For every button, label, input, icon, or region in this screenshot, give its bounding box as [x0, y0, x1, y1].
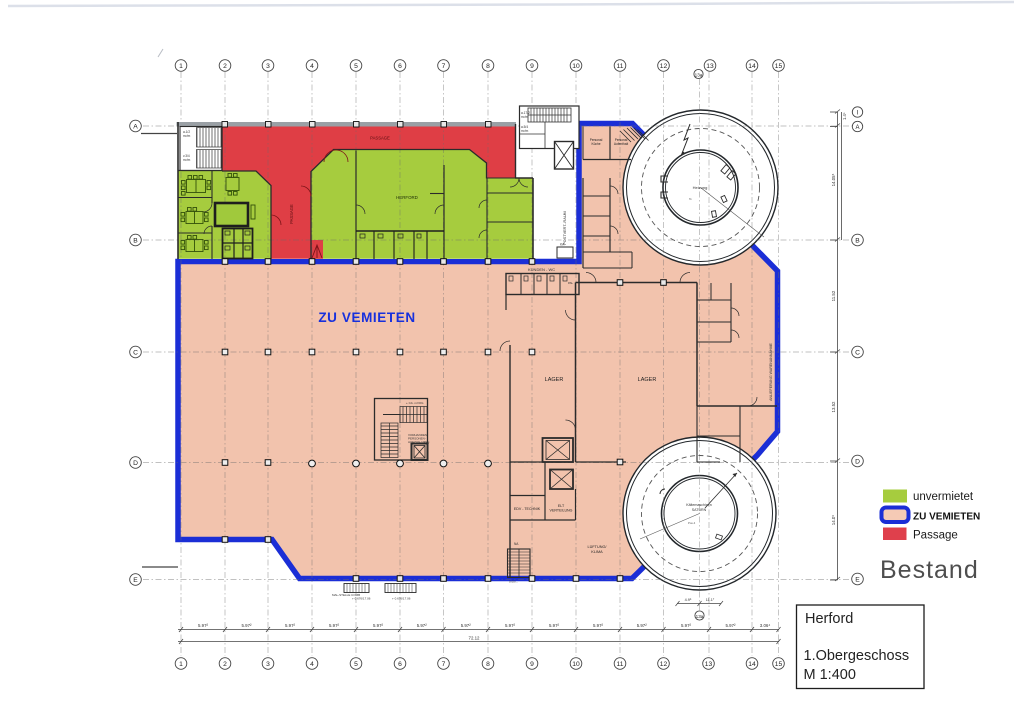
- svg-text:7: 7: [442, 63, 446, 70]
- svg-text:ZU VEMIETEN: ZU VEMIETEN: [913, 512, 980, 523]
- svg-text:72.12: 72.12: [469, 636, 481, 641]
- svg-text:14.0⁵: 14.0⁵: [831, 515, 836, 526]
- svg-text:m²/m: m²/m: [183, 134, 191, 138]
- svg-text:5.97²: 5.97²: [593, 623, 604, 628]
- svg-text:B: B: [855, 238, 860, 245]
- svg-text:5.97²: 5.97²: [549, 623, 560, 628]
- svg-text:E: E: [855, 577, 860, 584]
- svg-text:12: 12: [660, 661, 668, 668]
- svg-text:9: 9: [530, 63, 534, 70]
- svg-text:5.97²: 5.97²: [505, 623, 516, 628]
- svg-text:LÜFTUNG/: LÜFTUNG/: [588, 545, 608, 549]
- svg-text:8: 8: [486, 661, 490, 668]
- svg-text:14: 14: [748, 63, 756, 70]
- svg-text:M 1:400: M 1:400: [804, 667, 856, 683]
- svg-text:1.Obergeschoss: 1.Obergeschoss: [804, 648, 910, 664]
- svg-text:PASSAGE: PASSAGE: [370, 136, 390, 141]
- svg-text:14.05⁵: 14.05⁵: [831, 173, 836, 186]
- svg-text:Herford: Herford: [805, 611, 853, 627]
- svg-text:4.9⁵: 4.9⁵: [685, 598, 692, 602]
- svg-text:3: 3: [266, 63, 270, 70]
- svg-text:POSTVERT.-RAUM: POSTVERT.-RAUM: [563, 211, 567, 244]
- svg-text:11: 11: [617, 661, 624, 668]
- svg-text:KLIMA: KLIMA: [591, 550, 603, 554]
- svg-text:LAGER: LAGER: [638, 377, 657, 383]
- svg-text:E: E: [133, 577, 138, 584]
- svg-text:6: 6: [398, 661, 402, 668]
- svg-text:%: %: [689, 197, 692, 201]
- svg-text:11: 11: [617, 63, 624, 70]
- svg-text:PAL: PAL: [568, 281, 574, 285]
- svg-text:7: 7: [442, 661, 446, 668]
- svg-text:8: 8: [486, 63, 490, 70]
- svg-text:0.00/...: 0.00/...: [509, 580, 518, 584]
- svg-text:EDV - TECHNIK: EDV - TECHNIK: [514, 507, 541, 511]
- svg-text:4: 4: [310, 63, 314, 70]
- svg-text:1: 1: [179, 63, 183, 70]
- svg-text:1: 1: [179, 661, 183, 668]
- svg-text:VERTEILUNG: VERTEILUNG: [550, 509, 573, 513]
- svg-text:5.97²: 5.97²: [198, 623, 209, 628]
- svg-text:HERFORD: HERFORD: [396, 195, 418, 200]
- svg-text:ZU VEMIETEN: ZU VEMIETEN: [318, 310, 415, 325]
- svg-text:13a: 13a: [696, 614, 704, 619]
- svg-text:5.97²: 5.97²: [681, 623, 692, 628]
- svg-text:C: C: [133, 350, 138, 357]
- svg-text:3: 3: [266, 661, 270, 668]
- svg-text:+ 0.676/17.06: + 0.676/17.06: [352, 597, 371, 601]
- svg-text:Aufenthalt: Aufenthalt: [614, 142, 628, 146]
- svg-text:13: 13: [705, 661, 713, 668]
- svg-text:Bestand: Bestand: [880, 556, 979, 584]
- svg-text:m²/m: m²/m: [521, 115, 529, 119]
- svg-text:ELT: ELT: [558, 504, 565, 508]
- svg-text:13: 13: [706, 63, 714, 70]
- svg-text:14: 14: [748, 661, 756, 668]
- svg-text:5.97²: 5.97²: [329, 623, 340, 628]
- svg-text:B: B: [133, 238, 138, 245]
- svg-text:15: 15: [775, 661, 783, 668]
- svg-text:PASSAGE: PASSAGE: [289, 204, 294, 224]
- svg-text:4: 4: [310, 661, 314, 668]
- svg-text:C: C: [855, 350, 860, 357]
- svg-text:5.97²: 5.97²: [725, 623, 736, 628]
- svg-text:2: 2: [223, 63, 227, 70]
- svg-text:A: A: [855, 125, 859, 131]
- svg-text:Pos.4: Pos.4: [688, 521, 696, 525]
- svg-text:AUFZUG 100kg: AUFZUG 100kg: [408, 440, 430, 444]
- svg-text:D: D: [855, 459, 860, 466]
- svg-text:10: 10: [572, 661, 580, 668]
- svg-text:KUNDEN - WC: KUNDEN - WC: [528, 267, 555, 272]
- svg-text:Passage: Passage: [913, 530, 958, 542]
- svg-text:5: 5: [354, 661, 358, 668]
- svg-text:LAGER: LAGER: [545, 377, 564, 383]
- svg-text:+ CA. m²/OG: + CA. m²/OG: [406, 401, 424, 405]
- svg-text:ANLIEFERUNG WARENANNAHME: ANLIEFERUNG WARENANNAHME: [769, 343, 773, 401]
- svg-text:Küche: Küche: [591, 142, 600, 146]
- svg-text:12: 12: [660, 63, 668, 70]
- svg-text:5.97²: 5.97²: [637, 623, 648, 628]
- svg-text:A: A: [133, 124, 138, 131]
- svg-text:5.97²: 5.97²: [417, 623, 428, 628]
- svg-text:+ 0.676/17.06: + 0.676/17.06: [392, 597, 411, 601]
- svg-text:unvermietet: unvermietet: [913, 491, 974, 503]
- svg-text:5.97²: 5.97²: [241, 623, 252, 628]
- svg-text:SATURN: SATURN: [692, 508, 707, 512]
- svg-text:10: 10: [572, 63, 580, 70]
- svg-text:11.52: 11.52: [831, 290, 836, 301]
- svg-text:15: 15: [775, 63, 783, 70]
- svg-text:6: 6: [398, 63, 402, 70]
- svg-text:m²/m: m²/m: [183, 158, 191, 162]
- svg-text:2: 2: [223, 661, 227, 668]
- svg-text:3.06⁴: 3.06⁴: [760, 623, 771, 628]
- svg-text:13a: 13a: [695, 72, 703, 77]
- svg-text:11.1⁷: 11.1⁷: [706, 598, 715, 602]
- svg-text:13.52: 13.52: [831, 401, 836, 413]
- svg-text:D: D: [133, 460, 138, 467]
- svg-text:1.4⁵: 1.4⁵: [842, 112, 847, 120]
- svg-text:5.97²: 5.97²: [285, 623, 296, 628]
- svg-text:m²/m: m²/m: [521, 129, 529, 133]
- svg-text:Heizung: Heizung: [693, 185, 708, 190]
- svg-text:5.97²: 5.97²: [373, 623, 384, 628]
- svg-text:5.97²: 5.97²: [461, 623, 472, 628]
- svg-text:9: 9: [530, 661, 534, 668]
- svg-text:5: 5: [354, 63, 358, 70]
